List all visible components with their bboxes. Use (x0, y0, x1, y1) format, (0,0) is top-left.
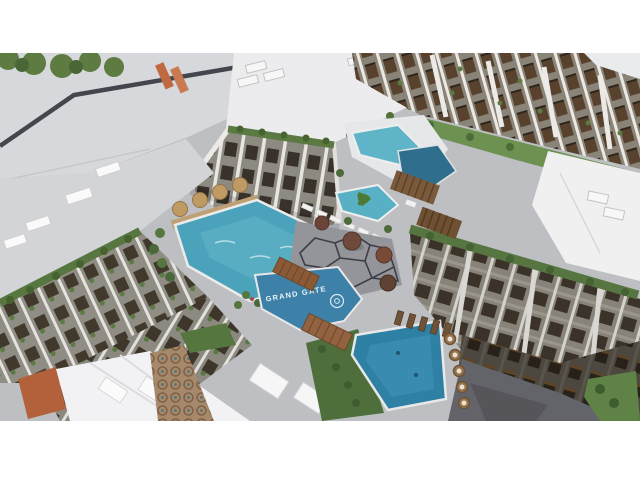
aerial-render-photo: GRAND GATE (0, 53, 640, 421)
screenshot: GRAND GATE (0, 0, 640, 480)
letterbox-top (0, 0, 640, 53)
letterbox-bottom (0, 421, 640, 480)
